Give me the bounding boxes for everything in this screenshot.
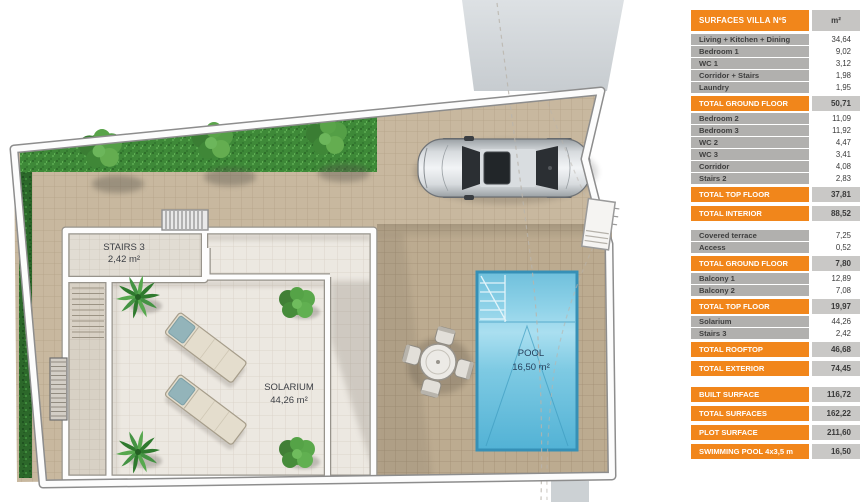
row-value: 74,45: [812, 361, 860, 376]
row-value: 34,64: [812, 34, 860, 45]
row-value: 3,12: [812, 58, 860, 69]
louver-unit: [50, 358, 67, 420]
row-value: 11,92: [812, 125, 860, 136]
row-value: 7,25: [812, 230, 860, 241]
row-label: TOTAL GROUND FLOOR: [691, 96, 809, 111]
table-total-row: BUILT SURFACE116,72: [691, 387, 862, 402]
row-value: 16,50: [812, 444, 860, 459]
table-total-row: PLOT SURFACE211,60: [691, 425, 862, 440]
solarium-area-label: 44,26 m²: [270, 395, 308, 406]
row-value: 211,60: [812, 425, 860, 440]
table-row: Laundry1,95: [691, 82, 862, 93]
row-label: TOTAL SURFACES: [691, 406, 809, 421]
row-value: 19,97: [812, 299, 860, 314]
stairs-corridor-floor: [69, 277, 107, 475]
row-label: Covered terrace: [691, 230, 809, 241]
table-total-row: TOTAL TOP FLOOR19,97: [691, 299, 862, 314]
row-value: 1,98: [812, 70, 860, 81]
row-label: TOTAL TOP FLOOR: [691, 187, 809, 202]
row-value: 2,83: [812, 173, 860, 184]
table-row: Living + Kitchen + Dining34,64: [691, 34, 862, 45]
row-label: BUILT SURFACE: [691, 387, 809, 402]
pool-area-label: 16,50 m²: [512, 362, 550, 373]
car-mirror: [464, 136, 474, 141]
row-value: 7,08: [812, 285, 860, 296]
site-plan: STAIRS 3 2,42 m² SOLARIUM 44,26 m²: [0, 0, 660, 502]
table-section-gap: [691, 223, 862, 230]
row-label: Corridor + Stairs: [691, 70, 809, 81]
row-label: WC 1: [691, 58, 809, 69]
entrance-gate: [582, 199, 620, 251]
table-total-row: SWIMMING POOL 4x3,5 m16,50: [691, 444, 862, 459]
row-value: 9,02: [812, 46, 860, 57]
table-row: WC 24,47: [691, 137, 862, 148]
bush-plant-icon: [279, 287, 315, 318]
driveway-ramp: [462, 0, 624, 91]
row-label: Stairs 2: [691, 173, 809, 184]
car-mirror: [464, 195, 474, 200]
row-value: 1,95: [812, 82, 860, 93]
row-label: Bedroom 2: [691, 113, 809, 124]
swimming-pool: POOL 16,50 m²: [477, 272, 577, 450]
row-value: 46,68: [812, 342, 860, 357]
table-row: Covered terrace7,25: [691, 230, 862, 241]
row-value: 4,08: [812, 161, 860, 172]
solarium-label: SOLARIUM: [264, 382, 314, 393]
row-value: m²: [812, 10, 860, 31]
bush-plant-icon: [279, 437, 315, 468]
row-value: 3,41: [812, 149, 860, 160]
row-label: TOTAL GROUND FLOOR: [691, 256, 809, 271]
stairs3-area-label: 2,42 m²: [108, 254, 140, 265]
row-label: WC 3: [691, 149, 809, 160]
table-total-row: TOTAL TOP FLOOR37,81: [691, 187, 862, 202]
row-value: 12,89: [812, 273, 860, 284]
rear-access-stub: [551, 481, 589, 502]
table-total-row: TOTAL EXTERIOR74,45: [691, 361, 862, 376]
row-label: Balcony 1: [691, 273, 809, 284]
floor-plan-sheet: STAIRS 3 2,42 m² SOLARIUM 44,26 m²: [0, 0, 868, 502]
table-header-row: SURFACES VILLA Nº5m²: [691, 10, 862, 31]
row-label: PLOT SURFACE: [691, 425, 809, 440]
row-label: Bedroom 1: [691, 46, 809, 57]
row-value: 2,42: [812, 328, 860, 339]
row-label: Corridor: [691, 161, 809, 172]
surfaces-table: SURFACES VILLA Nº5m²Living + Kitchen + D…: [691, 10, 862, 461]
row-value: 116,72: [812, 387, 860, 402]
row-label: SURFACES VILLA Nº5: [691, 10, 809, 31]
row-value: 88,52: [812, 206, 860, 221]
table-row: Bedroom 19,02: [691, 46, 862, 57]
table-total-row: TOTAL ROOFTOP46,68: [691, 342, 862, 357]
table-row: WC 33,41: [691, 149, 862, 160]
row-label: WC 2: [691, 137, 809, 148]
car-top-view: [414, 136, 598, 204]
row-value: 0,52: [812, 242, 860, 253]
table-total-row: TOTAL GROUND FLOOR50,71: [691, 96, 862, 111]
row-value: 7,80: [812, 256, 860, 271]
surface-table-rows: SURFACES VILLA Nº5m²Living + Kitchen + D…: [691, 10, 862, 461]
row-value: 4,47: [812, 137, 860, 148]
row-label: TOTAL EXTERIOR: [691, 361, 809, 376]
row-label: TOTAL TOP FLOOR: [691, 299, 809, 314]
table-total-row: TOTAL SURFACES162,22: [691, 406, 862, 421]
row-value: 50,71: [812, 96, 860, 111]
pool-label: POOL: [518, 348, 544, 359]
row-label: Balcony 2: [691, 285, 809, 296]
table-section-gap: [691, 378, 862, 385]
table-row: Balcony 112,89: [691, 273, 862, 284]
row-label: Stairs 3: [691, 328, 809, 339]
table-row: Stairs 32,42: [691, 328, 862, 339]
table-row: Stairs 22,83: [691, 173, 862, 184]
row-label: Living + Kitchen + Dining: [691, 34, 809, 45]
table-row: Bedroom 311,92: [691, 125, 862, 136]
rooftop-terrace: STAIRS 3 2,42 m² SOLARIUM 44,26 m²: [50, 210, 374, 479]
table-total-row: TOTAL INTERIOR88,52: [691, 206, 862, 221]
row-value: 11,09: [812, 113, 860, 124]
stairs3-label: STAIRS 3: [103, 242, 145, 253]
row-label: Solarium: [691, 316, 809, 327]
table-row: Corridor + Stairs1,98: [691, 70, 862, 81]
row-value: 37,81: [812, 187, 860, 202]
row-label: Laundry: [691, 82, 809, 93]
row-label: TOTAL INTERIOR: [691, 206, 809, 221]
roof-hatch: [162, 210, 208, 230]
table-row: WC 13,12: [691, 58, 862, 69]
table-row: Balcony 27,08: [691, 285, 862, 296]
row-label: SWIMMING POOL 4x3,5 m: [691, 444, 809, 459]
table-total-row: TOTAL GROUND FLOOR7,80: [691, 256, 862, 271]
row-label: TOTAL ROOFTOP: [691, 342, 809, 357]
table-row: Bedroom 211,09: [691, 113, 862, 124]
table-row: Solarium44,26: [691, 316, 862, 327]
row-label: Access: [691, 242, 809, 253]
table-row: Access0,52: [691, 242, 862, 253]
table-row: Corridor4,08: [691, 161, 862, 172]
row-value: 44,26: [812, 316, 860, 327]
row-label: Bedroom 3: [691, 125, 809, 136]
row-value: 162,22: [812, 406, 860, 421]
